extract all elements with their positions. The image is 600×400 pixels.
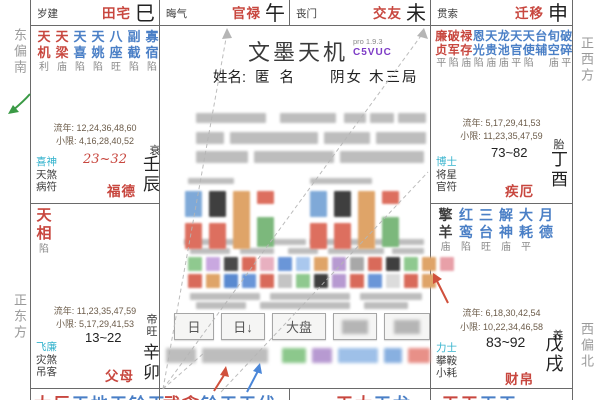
star-column: 擎羊庙 [435,207,456,254]
redacted-bar [190,293,260,300]
star-chars: 天天天天 [442,390,518,400]
star-columns: 廉贞平破军陷禄存庙恩光陷天贵庙龙池庙天官平天使陷台辅 旬空庙破碎平 [435,29,573,70]
redacted-bar [230,132,318,144]
tag-block [312,348,332,363]
star-column: 天喜陷 [71,29,89,74]
palace-bottom-hai[interactable]: 天天天天 [430,388,573,400]
star-char: 恩 [473,29,485,43]
star-char: 鸾 [459,224,473,241]
brightness-char: 庙 [501,241,511,254]
redacted-bar [270,293,350,300]
branch-label: 巳 [135,0,155,26]
brightness-char: 陷 [147,61,157,74]
year-god-label: 岁建 [37,6,58,21]
strip-block [278,257,292,271]
star-char: 地 [91,395,110,400]
redacted-bar [254,151,334,163]
tag-block [166,348,196,363]
branch-label: 申 [548,0,568,26]
fortune-block [334,191,351,217]
star-char: 天 [91,29,104,45]
fortune-block [233,191,250,249]
star-char: 破 [448,29,460,43]
star-column: 大耗平 [516,207,536,254]
fortune-block [310,191,327,217]
star-char: 天 [72,395,91,400]
strip-block [206,257,220,271]
compass-west-north-label: 西偏北 [577,322,596,370]
star-column: 破碎平 [560,29,573,70]
redacted-bar [188,178,234,184]
liunian-ages: 流年: 11,23,35,47,59 [31,304,159,317]
ziwei-chart-app: 东偏南 正东方 正西方 西偏北 岁建 田宅 巳 晦气 官禄 午 丧门 交友 未 … [0,0,600,400]
god-item: 飞廉 [36,341,57,354]
year-god-label: 丧门 [296,6,317,21]
star-char: 辅 [535,43,547,57]
brightness-char: 利 [39,61,49,74]
palace-jie-you[interactable]: 廉贞平破军陷禄存庙恩光陷天贵庙龙池庙天官平天使陷台辅 旬空庙破碎平 流年: 5,… [430,25,573,204]
decade-range[interactable]: 23~32 [83,152,127,167]
star-chars: 天太天龙 [336,390,412,400]
god-item: 病符 [36,181,57,194]
ganzhi-label: 戊戌 [545,334,564,374]
star-column: 天使陷 [523,29,536,70]
tag-block [202,348,268,363]
strip-block [242,257,256,271]
palace-bottom-chou[interactable]: 武贪铃天天伏 [159,388,290,400]
green-compass-arrow [12,94,30,111]
brightness-char: 陷 [129,61,139,74]
fortune-block [257,191,274,204]
strip-block [350,274,364,288]
brightness-char [545,241,548,254]
god-item: 攀鞍 [436,355,457,368]
star-column: 三台旺 [476,207,496,254]
brightness-char: 庙 [549,57,559,70]
strip-block [260,257,274,271]
brightness-char: 庙 [461,57,471,70]
brightness-char: 平 [436,57,446,70]
redacted-bar [196,113,266,123]
strip-block [260,274,274,288]
palace-qianyi-shen[interactable]: 贯索 迁移 申 [430,0,573,26]
star-char: 台 [479,224,493,241]
liunian-ages: 流年: 5,17,29,41,53 [431,116,572,129]
tag-block [408,348,430,363]
compass-west-label: 正西方 [577,36,596,84]
palace-name: 疾厄 [505,180,534,200]
star-char: 龙 [498,29,510,43]
name-value: 匿 名 [255,66,297,87]
strip-block [386,257,400,271]
star-column: 红鸾陷 [456,207,476,254]
star-char: 天 [442,395,461,400]
star-column: 天官平 [510,29,523,70]
star-column: 恩光陷 [473,29,486,70]
star-char: 旬 [548,29,560,43]
palace-guanlu-wu[interactable]: 晦气 官禄 午 [159,0,290,26]
star-column: 天机利 [35,29,53,74]
palace-bottom-zi[interactable]: 天太天龙 [289,388,431,400]
fortune-block [358,191,375,249]
brightness-char: 陷 [461,241,471,254]
liunian-ages: 流年: 12,24,36,48,60 [31,121,159,134]
xiaoxian-ages: 小限: 11,23,35,47,59 [431,129,572,142]
star-columns: 天机利天梁庙天喜陷天姚陷八座旺副截陷寡宿陷 [35,29,161,74]
star-char: 红 [459,207,473,224]
redacted-bar [360,293,422,300]
star-char: 光 [473,43,485,57]
star-char: 廉 [435,29,447,43]
strip-block [332,274,346,288]
star-char: 座 [109,45,122,61]
star-char: 使 [523,43,535,57]
star-char: 月 [539,207,553,224]
star-column: 廉贞平 [435,29,448,70]
star-char: 存 [460,43,472,57]
strip-block [224,257,238,271]
strip-block [296,274,310,288]
redacted-bar [376,132,426,144]
palace-caibo-xu[interactable]: 擎羊庙红鸾陷三台旺解神庙大耗平月德 流年: 6,18,30,42,54 小限: … [430,203,573,389]
redacted-bar [370,113,394,123]
fortune-block [310,223,327,249]
branch-label: 未 [406,0,426,26]
star-column: 禄存庙 [460,29,473,70]
fortune-block [257,217,274,247]
star-char: 贞 [435,43,447,57]
star-char: 空 [548,43,560,57]
app-code: C5VUC [353,47,392,58]
star-char: 太 [355,395,374,400]
palace-name: 父母 [105,365,134,385]
fortune-block [185,191,202,217]
god-item: 天煞 [36,169,57,182]
star-char: 天 [336,395,355,400]
brightness-char: 平 [521,241,531,254]
strip-block [314,257,328,271]
star-char: 天 [73,29,86,45]
god-item: 博士 [436,156,457,169]
palace-jiaoyou-wei[interactable]: 丧门 交友 未 [289,0,431,26]
star-char: 禄 [460,29,472,43]
palace-name: 迁移 [515,2,544,22]
star-column: 旬空庙 [548,29,561,70]
brightness-char: 平 [511,57,521,70]
star-char: 天 [110,395,129,400]
strip-block [440,257,454,271]
brightness-char: 庙 [441,241,451,254]
center-info-panel: 文墨天机 pro 1.9.3 C5VUC 姓名: 匿 名 阴女 木三局 日日↓大… [159,25,431,389]
star-char: 机 [37,45,50,61]
brightness-char: 庙 [499,57,509,70]
star-char: 天 [523,29,535,43]
view-toolbar: 日日↓大盘 [174,313,430,340]
palace-name: 交友 [373,2,402,22]
star-char: 三 [479,207,493,224]
redacted-bar [340,151,424,163]
star-column: 月德 [536,207,556,254]
god-item: 小耗 [436,367,457,380]
strip-block [404,274,418,288]
toolbar-button-redacted[interactable] [384,313,430,340]
strip-block [368,274,382,288]
redacted-bar [196,151,248,163]
star-columns: 擎羊庙红鸾陷三台旺解神庙大耗平月德 [435,207,556,254]
strip-block [206,274,220,288]
star-char: 太 [34,395,53,400]
strip-block [278,274,292,288]
xiaoxian-ages: 小限: 4,16,28,40,52 [31,134,159,147]
tag-block [338,348,378,363]
palace-name: 官禄 [232,2,261,22]
palace-name: 财帛 [505,368,534,388]
palace-name: 田宅 [102,2,131,22]
redacted-bar [392,248,424,254]
star-column: 八座旺 [107,29,125,74]
fortune-block [209,191,226,217]
star-char: 解 [499,207,513,224]
strip-block [314,274,328,288]
brightness-char: 陷 [93,61,103,74]
god-item: 官符 [436,181,457,194]
star-char: 官 [510,43,522,57]
strip-block [422,274,436,288]
star-char: 铃 [201,395,220,400]
redacted-bar [280,113,336,123]
xiaoxian-ages: 小限: 5,17,29,41,53 [31,317,159,330]
gods-list: 飞廉灾煞吊客 [36,341,57,379]
star-char: 羊 [439,224,453,241]
app-title: 文墨天机 [248,35,348,67]
star-char: 天 [461,395,480,400]
brightness-char: 陷 [449,57,459,70]
star-char: 天 [374,395,393,400]
palace-tianzhai-si[interactable]: 岁建 田宅 巳 [30,0,160,26]
star-char: 擎 [439,207,453,224]
redacted-bar [364,302,408,309]
star-char: 龙 [393,395,412,400]
star-char: 神 [499,224,513,241]
god-item: 吊客 [36,366,57,379]
tag-block [282,348,306,363]
star-char: 破 [560,29,572,43]
toolbar-button-日↓[interactable]: 日↓ [221,313,265,340]
fortune-block [382,191,399,204]
life-stage-label: 帝旺 [145,314,159,338]
liunian-ages: 流年: 6,18,30,42,54 [431,306,572,319]
brightness-char: 旺 [111,61,121,74]
ganzhi-label: 丁酉 [550,150,569,190]
star-column: 破军陷 [448,29,461,70]
strip-block [332,257,346,271]
god-item: 喜神 [36,156,57,169]
palace-name: 福德 [107,180,136,200]
brightness-char: 陷 [474,57,484,70]
star-char: 八 [109,29,122,45]
star-char: 台 [535,29,547,43]
star-char: 贵 [485,43,497,57]
star-char: 天 [510,29,522,43]
fortune-block [334,223,351,249]
star-column: 龙池庙 [498,29,511,70]
palace-bottom-yin[interactable]: 太巨天地天铃天 [30,388,160,400]
star-char: 寡 [145,29,158,45]
year-god-label: 晦气 [166,6,187,21]
gods-list: 力士攀鞍小耗 [436,342,457,380]
star-char: 德 [539,224,553,241]
god-item: 灾煞 [36,354,57,367]
star-column: 天相陷 [36,207,51,256]
star-char: 天 [499,395,518,400]
strip-block [404,257,418,271]
toolbar-button-大盘[interactable]: 大盘 [272,313,326,340]
star-char: 铃 [129,395,148,400]
fortune-block [185,223,202,249]
star-char: 巨 [53,395,72,400]
star-char: 碎 [560,43,572,57]
strip-block [188,257,202,271]
brightness-char: 陷 [524,57,534,70]
star-char: 天 [485,29,497,43]
star-char: 副 [127,29,140,45]
star-char: 耗 [519,224,533,241]
star-column: 天贵庙 [485,29,498,70]
tag-block [384,348,402,363]
star-chars: 武贪铃天天伏 [163,390,277,400]
star-char: 贪 [182,395,201,400]
brightness-char: 庙 [486,57,496,70]
star-column: 台辅 [535,29,548,70]
gender-bureau: 阴女 木三局 [330,66,419,87]
redacted-bar [196,302,246,309]
star-char: 天 [220,395,239,400]
star-char: 梁 [55,45,68,61]
year-god-label: 贯索 [437,6,458,21]
star-char: 天 [36,207,51,225]
star-char: 天 [37,29,50,45]
redacted-bar [398,113,426,123]
gods-list: 博士将星官符 [436,156,457,194]
brightness-char: 陷 [39,243,49,256]
compass-east-south-label: 东偏南 [10,28,29,76]
star-char: 截 [127,45,140,61]
star-char: 姚 [91,45,104,61]
star-char: 天 [239,395,258,400]
strip-block [296,257,310,271]
brightness-char: 平 [561,57,571,70]
star-char: 宿 [145,45,158,61]
star-char: 相 [36,225,51,243]
app-version: pro 1.9.3 [353,37,383,46]
redacted-bar [196,132,224,144]
fortune-block [382,217,399,247]
redacted-bar [310,178,372,184]
god-item: 力士 [436,342,457,355]
fortune-block [209,223,226,249]
strip-block [188,274,202,288]
decade-range[interactable]: 83~92 [486,334,525,350]
name-label: 姓名: [213,66,246,87]
star-chars: 太巨天地天铃天 [34,390,167,400]
star-char: 天 [55,29,68,45]
brightness-char [540,57,543,70]
compass-east-label: 正东方 [10,293,29,341]
toolbar-button-redacted[interactable] [333,313,377,340]
strip-block [422,257,436,271]
brightness-char: 陷 [75,61,85,74]
star-column: 解神庙 [496,207,516,254]
star-column: 天姚陷 [89,29,107,74]
god-item: 将星 [436,169,457,182]
strip-block [224,274,238,288]
star-char: 池 [498,43,510,57]
star-char: 天 [480,395,499,400]
brightness-char: 旺 [481,241,491,254]
star-char: 武 [163,395,182,400]
toolbar-button-日[interactable]: 日 [174,313,214,340]
redacted-bar [344,113,366,123]
strip-block [368,257,382,271]
brightness-char: 庙 [57,61,67,74]
decade-range[interactable]: 13~22 [85,330,122,345]
branch-label: 午 [265,0,285,26]
star-column: 天梁庙 [53,29,71,74]
strip-block [386,274,400,288]
star-char: 军 [448,43,460,57]
strip-block [350,257,364,271]
redacted-bar [260,302,350,309]
palace-fumu-mao[interactable]: 天相陷 流年: 11,23,35,47,59 小限: 5,17,29,41,53… [30,203,160,389]
palace-fude-chen[interactable]: 天机利天梁庙天喜陷天姚陷八座旺副截陷寡宿陷 流年: 12,24,36,48,60… [30,25,160,204]
redacted-bar [324,132,370,144]
star-char: 喜 [73,45,86,61]
gods-list: 喜神天煞病符 [36,156,57,194]
star-column: 副截陷 [125,29,143,74]
star-char: 伏 [258,395,277,400]
strip-block [242,274,256,288]
decade-range[interactable]: 73~82 [491,145,528,160]
star-char: 大 [519,207,533,224]
star-columns: 天相陷 [35,207,53,256]
